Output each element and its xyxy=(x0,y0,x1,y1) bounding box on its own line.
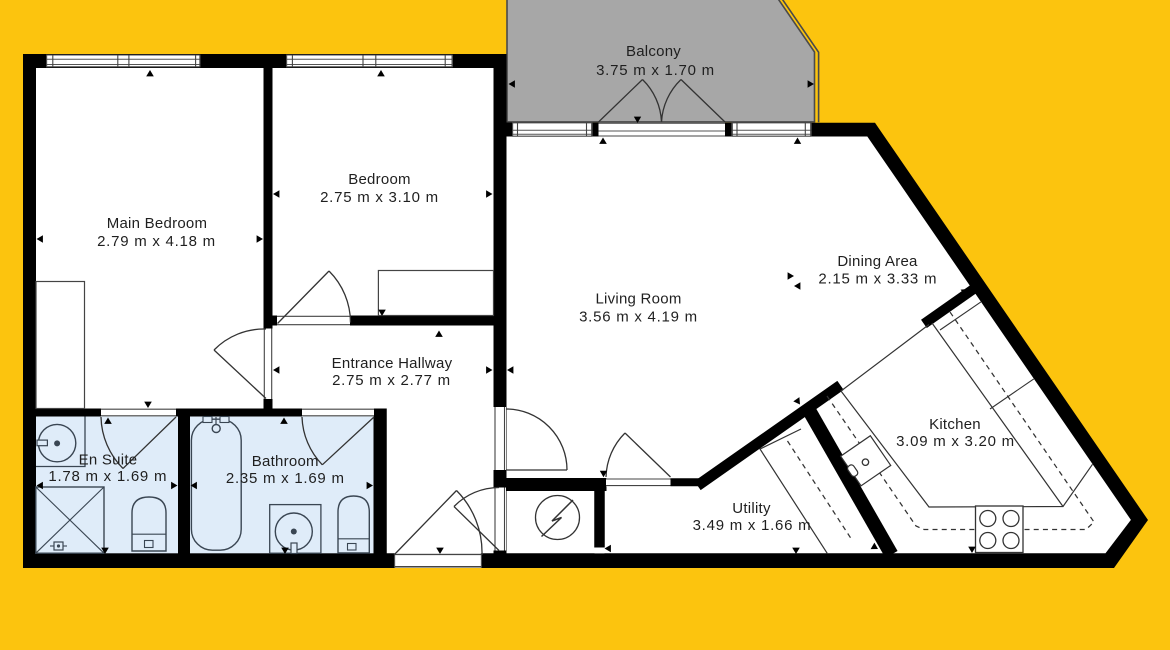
svg-text:3.09 m x 3.20 m: 3.09 m x 3.20 m xyxy=(896,433,1015,450)
svg-text:En Suite: En Suite xyxy=(79,452,138,469)
svg-text:Balcony: Balcony xyxy=(626,43,681,60)
svg-text:Living Room: Living Room xyxy=(595,291,681,308)
svg-text:1.78 m x 1.69 m: 1.78 m x 1.69 m xyxy=(48,468,167,485)
svg-text:Dining Area: Dining Area xyxy=(837,253,918,270)
svg-text:2.15 m x 3.33 m: 2.15 m x 3.33 m xyxy=(818,271,937,288)
svg-text:2.35 m x 1.69 m: 2.35 m x 1.69 m xyxy=(226,470,345,487)
svg-text:3.56 m x 4.19 m: 3.56 m x 4.19 m xyxy=(579,309,698,326)
svg-text:Bathroom: Bathroom xyxy=(252,453,319,470)
svg-text:Entrance Hallway: Entrance Hallway xyxy=(332,355,453,372)
svg-text:3.49 m x 1.66 m: 3.49 m x 1.66 m xyxy=(693,517,812,534)
svg-text:Kitchen: Kitchen xyxy=(929,416,981,433)
svg-text:3.75 m x 1.70 m: 3.75 m x 1.70 m xyxy=(596,62,715,79)
svg-text:Utility: Utility xyxy=(732,500,771,517)
svg-text:2.79 m x 4.18 m: 2.79 m x 4.18 m xyxy=(97,233,216,250)
svg-text:Main Bedroom: Main Bedroom xyxy=(107,215,208,232)
svg-text:2.75 m x 3.10 m: 2.75 m x 3.10 m xyxy=(320,189,439,206)
svg-text:2.75 m x 2.77 m: 2.75 m x 2.77 m xyxy=(332,372,451,389)
svg-text:Bedroom: Bedroom xyxy=(348,171,411,188)
